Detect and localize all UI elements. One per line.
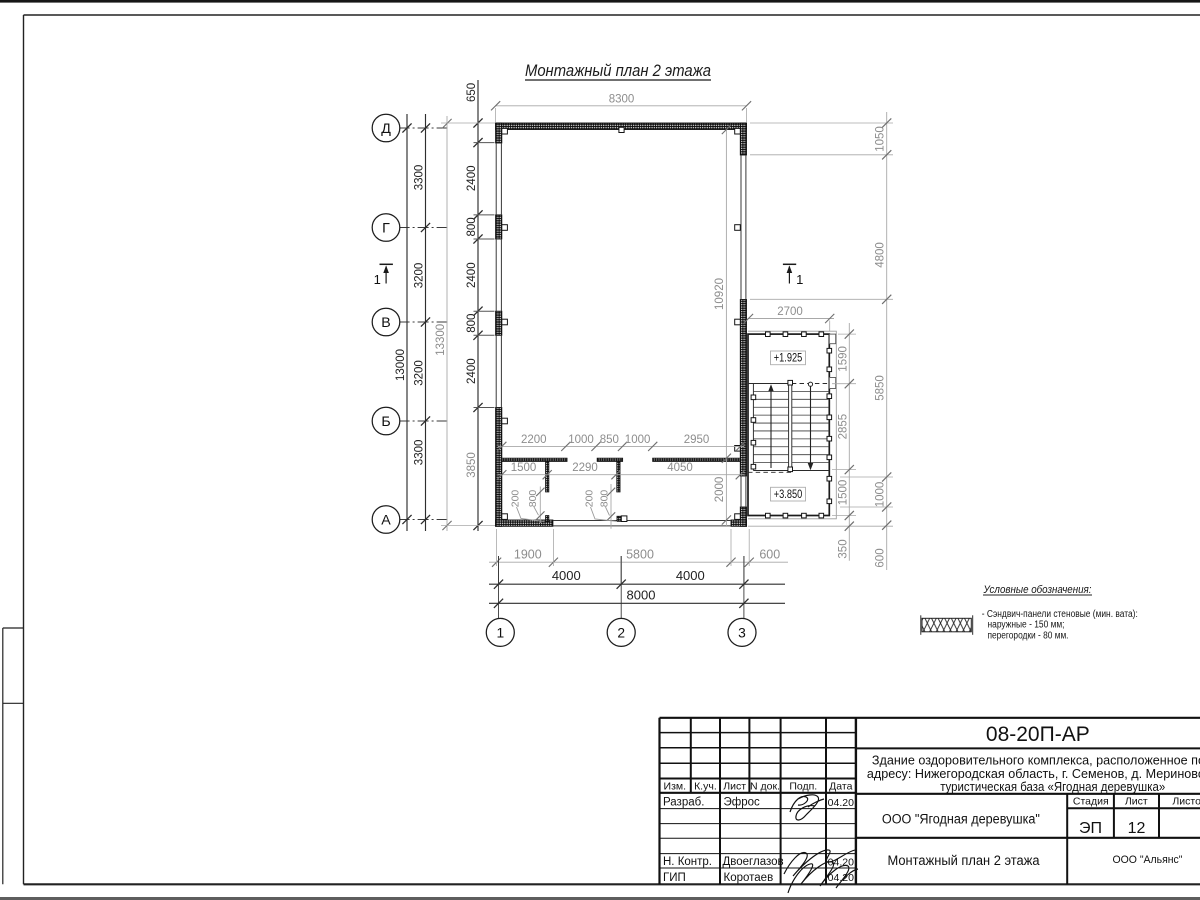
svg-text:N док.: N док. bbox=[750, 781, 780, 793]
svg-text:Эфрос: Эфрос bbox=[724, 797, 761, 809]
svg-text:8300: 8300 bbox=[609, 93, 635, 105]
svg-text:2400: 2400 bbox=[466, 358, 478, 384]
svg-text:2855: 2855 bbox=[837, 414, 849, 440]
svg-text:перегородки - 80 мм.: перегородки - 80 мм. bbox=[988, 631, 1069, 642]
svg-text:Н. Контр.: Н. Контр. bbox=[663, 856, 712, 868]
svg-text:Лист: Лист bbox=[1125, 796, 1148, 808]
svg-text:2400: 2400 bbox=[466, 262, 478, 288]
svg-text:08-20П-АР: 08-20П-АР bbox=[986, 723, 1090, 746]
svg-text:200: 200 bbox=[510, 490, 522, 508]
svg-text:ООО "Ягодная деревушка": ООО "Ягодная деревушка" bbox=[882, 812, 1040, 827]
svg-text:Г: Г bbox=[382, 221, 390, 237]
svg-text:600: 600 bbox=[875, 548, 887, 567]
svg-text:1: 1 bbox=[496, 625, 504, 640]
svg-text:В: В bbox=[381, 315, 390, 331]
svg-text:3200: 3200 bbox=[414, 263, 426, 289]
svg-text:800: 800 bbox=[466, 217, 478, 236]
svg-text:4050: 4050 bbox=[667, 462, 693, 474]
svg-text:Монтажный план 2 этажа: Монтажный план 2 этажа bbox=[888, 853, 1040, 868]
svg-text:2200: 2200 bbox=[521, 434, 547, 446]
svg-text:Дата: Дата bbox=[829, 781, 852, 793]
svg-text:1: 1 bbox=[374, 272, 381, 287]
svg-text:2700: 2700 bbox=[777, 306, 803, 318]
svg-text:Разраб.: Разраб. bbox=[663, 797, 704, 809]
svg-text:1500: 1500 bbox=[837, 480, 849, 506]
svg-text:04.20: 04.20 bbox=[828, 797, 854, 809]
svg-text:1000: 1000 bbox=[568, 434, 594, 446]
svg-text:Д: Д bbox=[381, 121, 391, 137]
svg-text:800: 800 bbox=[527, 490, 539, 508]
svg-text:2950: 2950 bbox=[684, 434, 710, 446]
svg-text:Подп.: Подп. bbox=[789, 781, 817, 793]
svg-text:1900: 1900 bbox=[514, 548, 542, 562]
svg-text:1500: 1500 bbox=[511, 462, 537, 474]
svg-text:2290: 2290 bbox=[572, 462, 598, 474]
svg-text:13000: 13000 bbox=[395, 349, 407, 381]
svg-text:2000: 2000 bbox=[714, 477, 726, 503]
svg-text:1590: 1590 bbox=[837, 346, 849, 372]
svg-text:2: 2 bbox=[617, 625, 625, 640]
svg-text:А: А bbox=[381, 513, 391, 529]
svg-text:3: 3 bbox=[738, 625, 746, 640]
svg-text:600: 600 bbox=[759, 548, 780, 562]
svg-text:Лист: Лист bbox=[723, 781, 746, 793]
svg-text:ООО "Альянс": ООО "Альянс" bbox=[1113, 854, 1183, 866]
svg-text:4800: 4800 bbox=[875, 242, 887, 268]
svg-text:650: 650 bbox=[466, 83, 478, 102]
svg-text:1: 1 bbox=[796, 272, 803, 287]
svg-text:Здание оздоровительного компле: Здание оздоровительного комплекса, распо… bbox=[872, 754, 1200, 768]
svg-text:наружные - 150 мм;: наружные - 150 мм; bbox=[988, 620, 1065, 631]
svg-text:1000: 1000 bbox=[875, 482, 887, 508]
svg-text:3200: 3200 bbox=[414, 360, 426, 386]
svg-text:5850: 5850 bbox=[875, 375, 887, 401]
svg-text:Коротаев: Коротаев bbox=[724, 872, 774, 884]
svg-text:1050: 1050 bbox=[875, 126, 887, 152]
svg-text:Б: Б bbox=[381, 414, 390, 430]
svg-text:4000: 4000 bbox=[552, 568, 581, 583]
svg-text:850: 850 bbox=[600, 434, 619, 446]
svg-text:Двоеглазов: Двоеглазов bbox=[723, 856, 784, 868]
svg-text:Монтажный план 2 этажа: Монтажный план 2 этажа bbox=[525, 62, 711, 80]
svg-text:8000: 8000 bbox=[627, 588, 656, 603]
svg-text:3300: 3300 bbox=[414, 440, 426, 466]
svg-text:туристическая база «Ягодная де: туристическая база «Ягодная деревушка» bbox=[940, 780, 1165, 794]
svg-text:К.уч.: К.уч. bbox=[694, 781, 717, 793]
svg-text:800: 800 bbox=[466, 314, 478, 333]
svg-text:Условные обозначения:: Условные обозначения: bbox=[983, 584, 1092, 596]
svg-text:2400: 2400 bbox=[466, 166, 478, 192]
svg-text:13300: 13300 bbox=[435, 324, 447, 356]
svg-text:3850: 3850 bbox=[466, 452, 478, 478]
svg-text:800: 800 bbox=[599, 490, 611, 508]
svg-text:ГИП: ГИП bbox=[663, 872, 686, 884]
svg-text:Листов: Листов bbox=[1172, 796, 1200, 808]
svg-text:200: 200 bbox=[584, 490, 596, 508]
svg-text:1000: 1000 bbox=[625, 434, 651, 446]
svg-text:Стадия: Стадия bbox=[1073, 796, 1109, 808]
svg-text:- Сэндвич-панели стеновые (мин: - Сэндвич-панели стеновые (мин. вата): bbox=[982, 609, 1138, 620]
svg-text:12: 12 bbox=[1128, 820, 1146, 837]
svg-text:4000: 4000 bbox=[676, 568, 705, 583]
svg-text:+3.850: +3.850 bbox=[774, 489, 803, 501]
svg-text:3300: 3300 bbox=[414, 165, 426, 191]
svg-text:Изм.: Изм. bbox=[664, 781, 687, 793]
svg-text:10920: 10920 bbox=[714, 278, 726, 310]
svg-text:ЭП: ЭП bbox=[1079, 820, 1102, 837]
svg-text:+1.925: +1.925 bbox=[774, 353, 803, 365]
svg-text:5800: 5800 bbox=[626, 548, 654, 562]
svg-text:350: 350 bbox=[837, 539, 849, 558]
svg-text:адресу: Нижегородская область,: адресу: Нижегородская область, г. Семено… bbox=[867, 767, 1200, 781]
